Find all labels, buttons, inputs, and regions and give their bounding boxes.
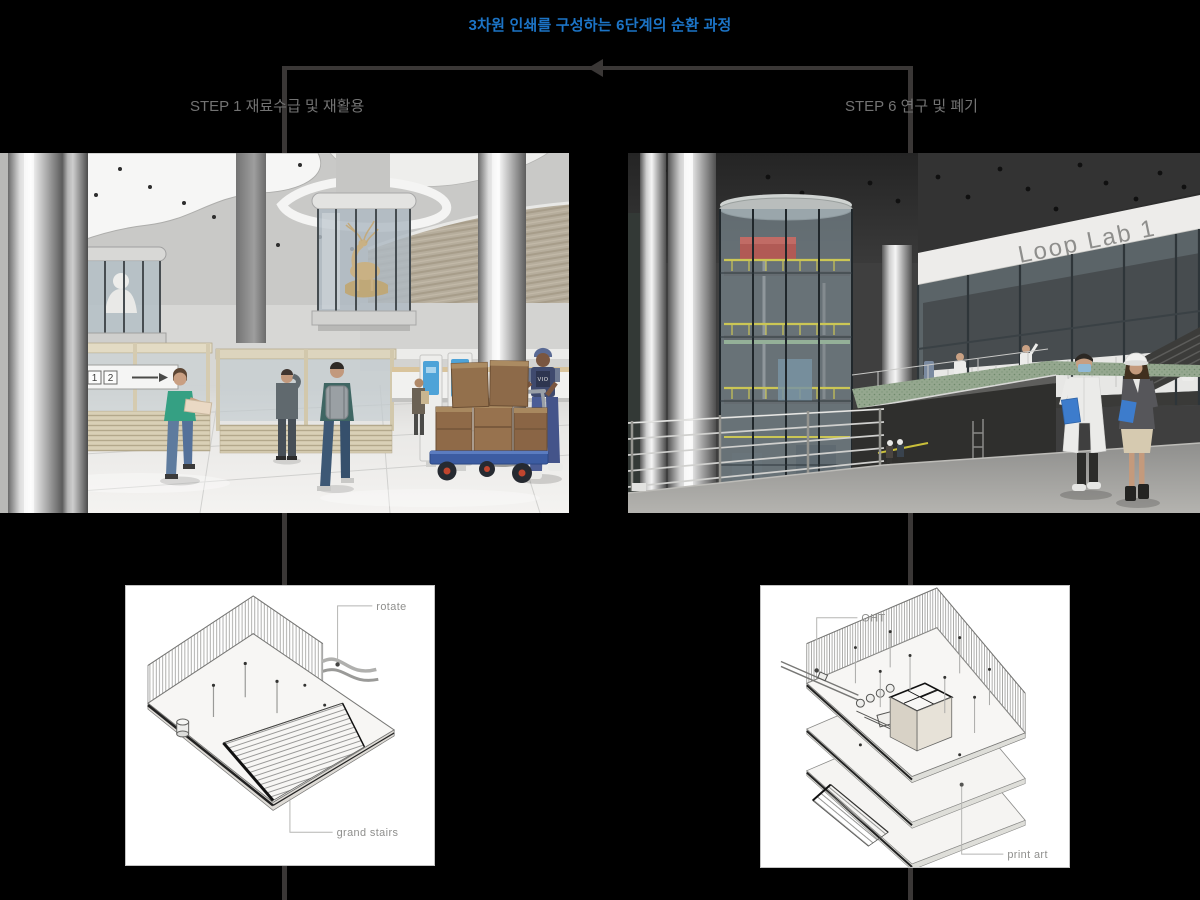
worker-vest-text: VIO bbox=[538, 377, 549, 383]
sign-number-1: 1 bbox=[92, 373, 98, 384]
photo-step1-lobby-render: 1 2 bbox=[0, 153, 569, 513]
rotate-callout: rotate bbox=[335, 601, 406, 667]
metallic-columns bbox=[640, 153, 716, 513]
connector-left-lower bbox=[282, 864, 287, 900]
lobby-scene: 1 2 bbox=[0, 153, 569, 513]
elevator-shaft bbox=[336, 153, 390, 197]
small-equipment bbox=[632, 483, 646, 491]
grand-stairs-callout: grand stairs bbox=[290, 798, 399, 839]
photo-step6-lab-render: Loop Lab 1 bbox=[628, 153, 1200, 513]
sign-number-2: 2 bbox=[108, 373, 114, 384]
print-cell bbox=[890, 683, 952, 751]
waste-bin bbox=[177, 719, 189, 737]
page-title: 3차원 인쇄를 구성하는 6단계의 순환 과정 bbox=[0, 14, 1200, 35]
face-mask bbox=[1078, 364, 1091, 372]
connector-right-lower bbox=[908, 864, 913, 900]
glass-machine-tower bbox=[720, 194, 852, 511]
glass-elevator-deer bbox=[312, 193, 416, 331]
print-art-label: print art bbox=[1007, 849, 1048, 861]
left-cylindrical-columns bbox=[8, 153, 88, 513]
lab-scene: Loop Lab 1 bbox=[628, 153, 1200, 513]
diagram-step1-isometric: rotate grand stairs bbox=[125, 585, 435, 866]
blue-folder bbox=[1061, 398, 1080, 424]
glass-elevator-bust bbox=[82, 247, 166, 345]
step6-label: STEP 6 연구 및 폐기 bbox=[845, 95, 978, 116]
flow-arrow-left-icon bbox=[588, 59, 603, 77]
grand-stairs-label: grand stairs bbox=[337, 827, 399, 839]
grand-stairs-diagram: rotate grand stairs bbox=[126, 586, 434, 865]
oht-label: OHT bbox=[861, 613, 885, 625]
center-column bbox=[236, 153, 266, 343]
connector-right-middle bbox=[908, 513, 913, 586]
bust-statue bbox=[113, 273, 129, 289]
rotate-tubes bbox=[323, 659, 379, 680]
rotate-label: rotate bbox=[376, 601, 406, 613]
poster-canvas: 3차원 인쇄를 구성하는 6단계의 순환 과정 STEP 1 재료수급 및 재활… bbox=[0, 0, 1200, 900]
diagram-step6-isometric: OHT print art bbox=[760, 585, 1070, 868]
print-lab-diagram: OHT print art bbox=[761, 586, 1069, 867]
elevator-direction-sign: 1 2 bbox=[82, 365, 178, 389]
far-left-pillar bbox=[628, 213, 642, 493]
connector-left-middle bbox=[282, 513, 287, 586]
step1-label: STEP 1 재료수급 및 재활용 bbox=[190, 95, 364, 116]
